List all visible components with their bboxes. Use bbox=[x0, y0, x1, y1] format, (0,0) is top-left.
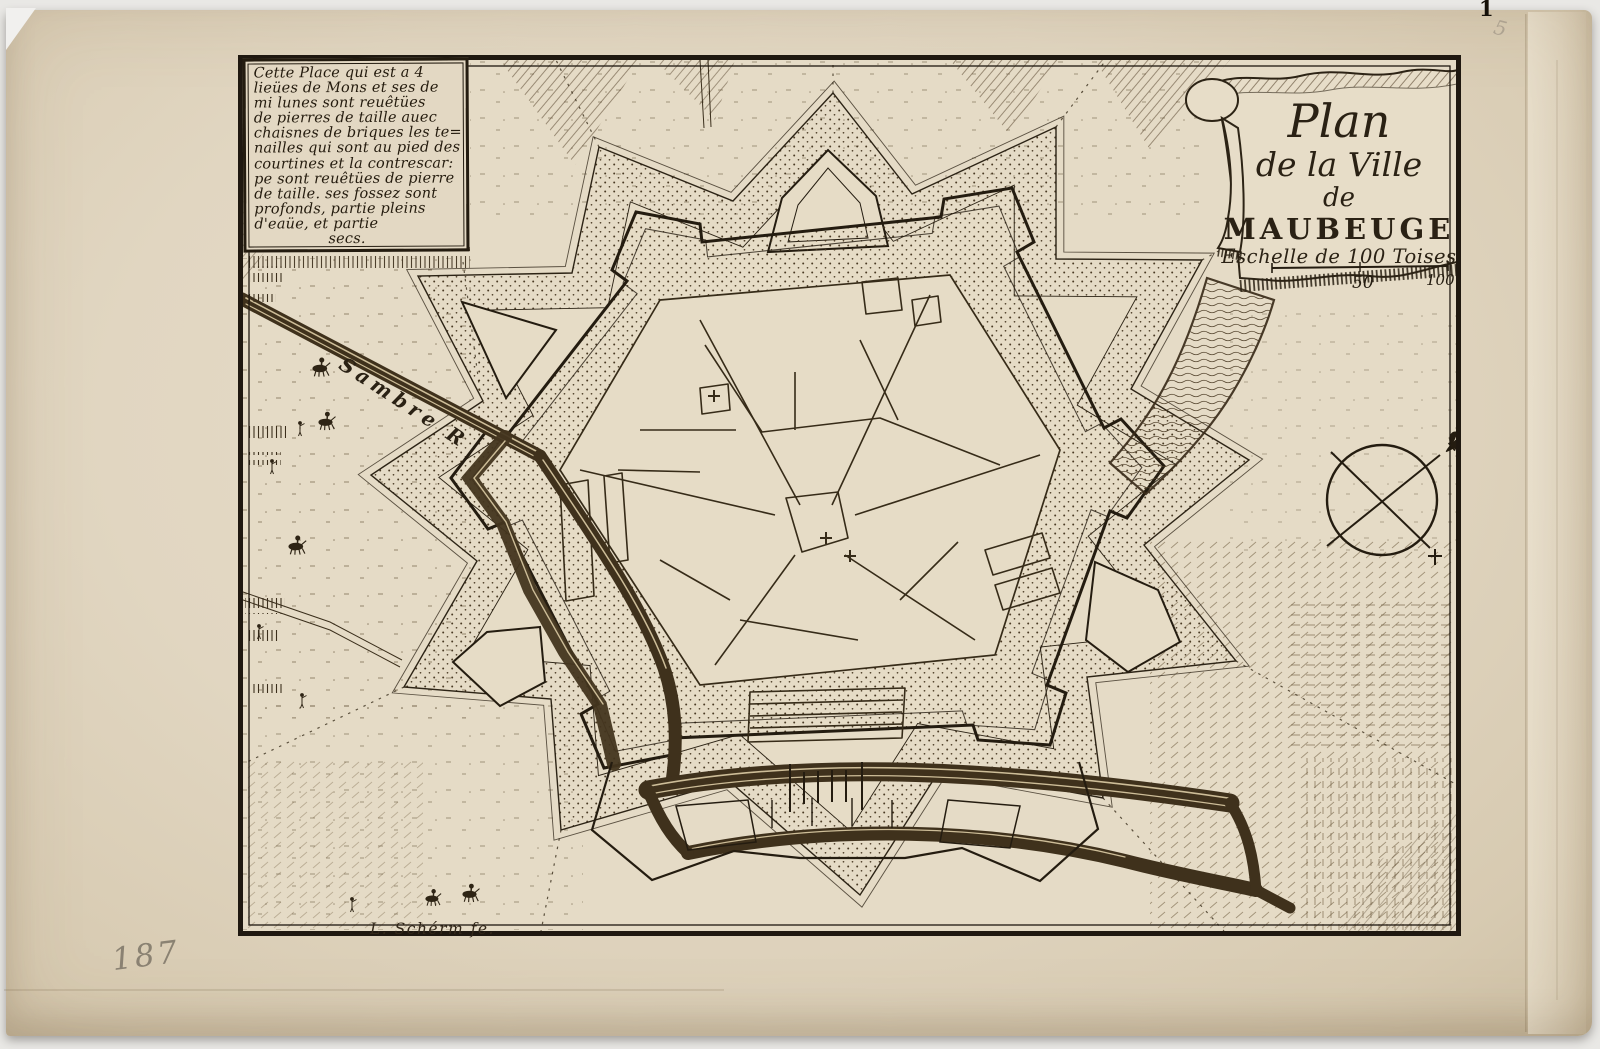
map-title-city-name: MAUBEUGE bbox=[1216, 212, 1462, 246]
description-line: de taille. ses fossez sont bbox=[254, 186, 462, 202]
scale-tick-100: 100 bbox=[1426, 271, 1455, 289]
map-title-line: Plan bbox=[1216, 96, 1462, 146]
scanned-map-photo: 50 100 1 Cette Place qui est a 4 lieües … bbox=[0, 0, 1600, 1049]
map-title-line: de bbox=[1216, 184, 1462, 212]
description-line: secs. bbox=[254, 231, 462, 247]
scale-tick-50: 50 bbox=[1352, 273, 1374, 293]
map-scale-label: Eschelle de 100 Toises bbox=[1216, 246, 1462, 268]
description-cartouche: Cette Place qui est a 4 lieües de Mons e… bbox=[242, 57, 469, 252]
engraver-signature: L. Schérm fe. bbox=[370, 920, 495, 938]
plate-number: 1 bbox=[1479, 0, 1494, 21]
map-title-line: de la Ville bbox=[1216, 146, 1462, 184]
title-cartouche: Plan de la Ville de MAUBEUGE Eschelle de… bbox=[1216, 96, 1462, 268]
